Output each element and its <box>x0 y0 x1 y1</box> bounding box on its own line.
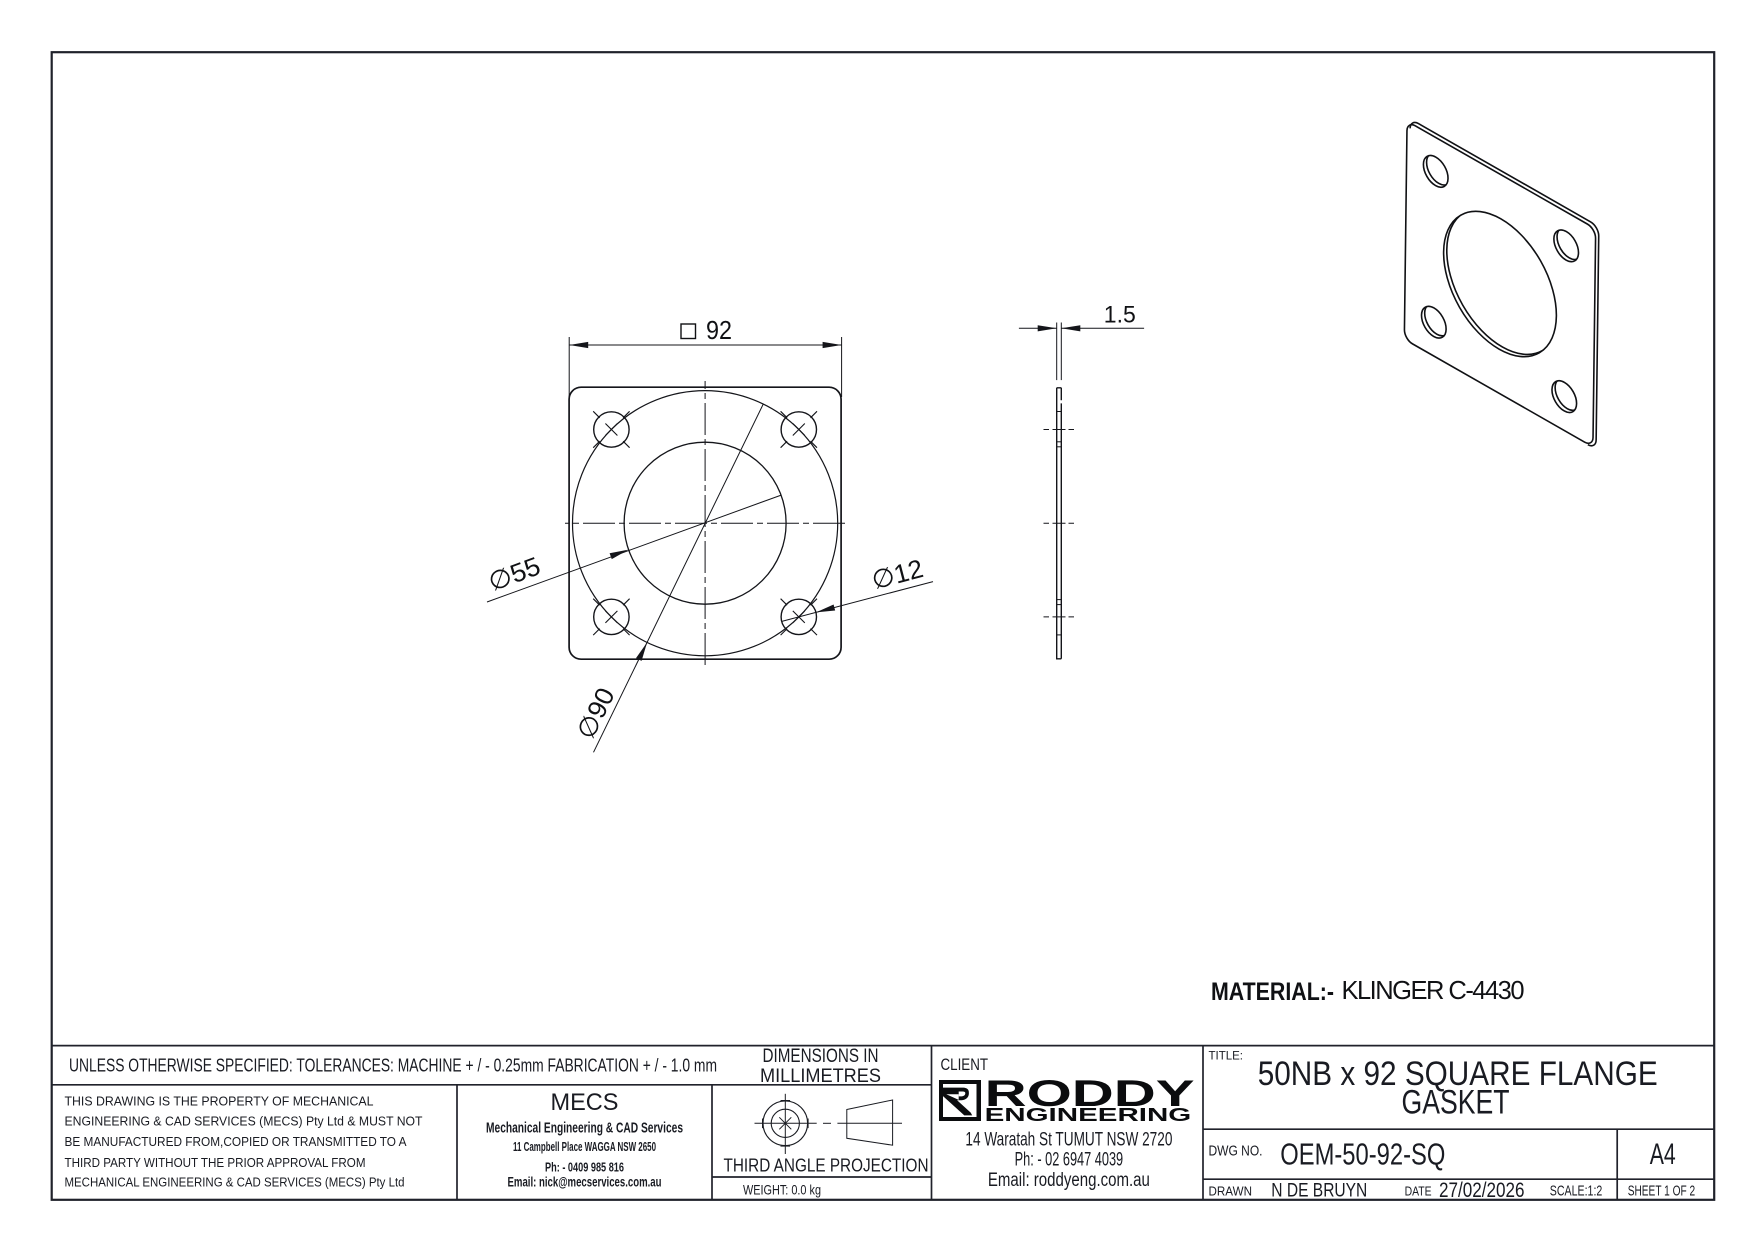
svg-text:BE MANUFACTURED FROM,COPIED OR: BE MANUFACTURED FROM,COPIED OR TRANSMITT… <box>65 1134 407 1149</box>
svg-text:∅55: ∅55 <box>484 551 544 598</box>
svg-text:DIMENSIONS IN: DIMENSIONS IN <box>763 1045 879 1067</box>
svg-text:MECS: MECS <box>551 1089 619 1116</box>
svg-text:Ph: - 0409 985 816: Ph: - 0409 985 816 <box>545 1160 624 1175</box>
svg-text:27/02/2026: 27/02/2026 <box>1439 1179 1525 1202</box>
svg-text:MECHANICAL ENGINEERING & CAD S: MECHANICAL ENGINEERING & CAD SERVICES (M… <box>65 1175 405 1190</box>
svg-text:THIRD PARTY WITHOUT THE PRIOR: THIRD PARTY WITHOUT THE PRIOR APPROVAL F… <box>65 1155 366 1170</box>
svg-text:TITLE:: TITLE: <box>1209 1051 1244 1063</box>
svg-text:14 Waratah St TUMUT NSW 2720: 14 Waratah St TUMUT NSW 2720 <box>965 1129 1172 1151</box>
svg-text:Ph: - 02 6947 4039: Ph: - 02 6947 4039 <box>1015 1150 1124 1171</box>
svg-text:Mechanical Engineering & CAD S: Mechanical Engineering & CAD Services <box>486 1120 683 1137</box>
svg-text:A4: A4 <box>1650 1138 1676 1171</box>
svg-text:THIS DRAWING IS THE PROPERTY O: THIS DRAWING IS THE PROPERTY OF MECHANIC… <box>65 1093 374 1108</box>
svg-text:UNLESS OTHERWISE SPECIFIED: TO: UNLESS OTHERWISE SPECIFIED: TOLERANCES: … <box>69 1056 717 1076</box>
svg-text:MILLIMETRES: MILLIMETRES <box>760 1065 881 1087</box>
svg-text:SHEET 1 OF 2: SHEET 1 OF 2 <box>1628 1184 1696 1200</box>
svg-text:KLINGER C-4430: KLINGER C-4430 <box>1342 977 1525 1005</box>
svg-text:Email: roddyeng.com.au: Email: roddyeng.com.au <box>988 1170 1150 1191</box>
svg-text:DATE: DATE <box>1405 1185 1432 1199</box>
svg-text:DRAWN: DRAWN <box>1209 1185 1253 1199</box>
svg-text:OEM-50-92-SQ: OEM-50-92-SQ <box>1280 1137 1445 1172</box>
svg-text:N DE BRUYN: N DE BRUYN <box>1271 1181 1367 1202</box>
svg-text:11 Campbell Place WAGGA NSW 26: 11 Campbell Place WAGGA NSW 2650 <box>513 1139 656 1154</box>
svg-text:ENGINEERING & CAD SERVICES (ME: ENGINEERING & CAD SERVICES (MECS) Pty Lt… <box>65 1114 423 1129</box>
svg-text:MATERIAL:-: MATERIAL:- <box>1211 978 1334 1006</box>
svg-text:∅12: ∅12 <box>868 553 926 595</box>
svg-text:CLIENT: CLIENT <box>941 1056 989 1074</box>
svg-text:GASKET: GASKET <box>1402 1083 1510 1121</box>
svg-text:Email: nick@mecservices.com.au: Email: nick@mecservices.com.au <box>508 1175 662 1190</box>
svg-text:ENGINEERING: ENGINEERING <box>985 1105 1192 1125</box>
svg-text:1.5: 1.5 <box>1104 302 1136 329</box>
svg-text:THIRD ANGLE PROJECTION: THIRD ANGLE PROJECTION <box>724 1155 929 1176</box>
svg-text:WEIGHT: 0.0 kg: WEIGHT: 0.0 kg <box>743 1182 821 1198</box>
svg-text:SCALE:1:2: SCALE:1:2 <box>1550 1184 1603 1200</box>
svg-text:92: 92 <box>706 317 732 345</box>
svg-text:DWG NO.: DWG NO. <box>1209 1143 1263 1159</box>
